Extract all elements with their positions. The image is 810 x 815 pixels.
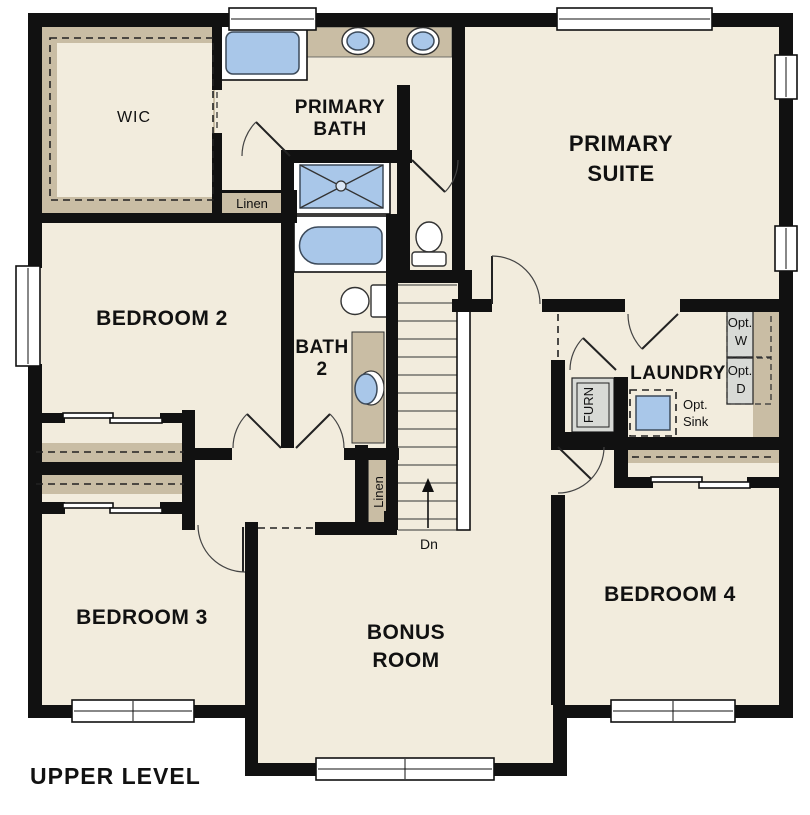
window-bonus-bottom xyxy=(316,758,494,780)
bath2-tub xyxy=(294,216,388,272)
stair-railing xyxy=(457,306,470,530)
label-linen-upper: Linen xyxy=(236,196,268,211)
room-label-primary-suite-2: SUITE xyxy=(587,161,654,186)
bath2-sink xyxy=(355,371,384,405)
laundry-counter-strip xyxy=(753,312,781,437)
room-label-primary-bath-1: PRIMARY xyxy=(295,97,385,118)
label-opt-sink-2: Sink xyxy=(683,414,709,429)
linen-upper-edge xyxy=(218,190,287,193)
window-primary-suite-right-1 xyxy=(775,55,797,99)
room-label-bedroom4: BEDROOM 4 xyxy=(604,583,736,606)
floor-plan-canvas: WIC PRIMARY BATH PRIMARY SUITE Linen BED… xyxy=(0,0,810,810)
window-bedroom4-bottom xyxy=(611,700,735,722)
primary-tub xyxy=(218,25,307,80)
primary-sink-left xyxy=(342,28,374,55)
room-label-laundry: LAUNDRY xyxy=(630,363,726,384)
room-label-bonus-2: ROOM xyxy=(372,649,439,672)
window-bedroom2-left xyxy=(16,266,40,366)
window-bedroom3-bottom xyxy=(72,700,194,722)
room-label-primary-bath-2: BATH xyxy=(313,119,366,140)
label-opt-washer-2: W xyxy=(735,333,748,348)
label-opt-dryer-1: Opt. xyxy=(728,363,753,378)
room-label-bath2-2: 2 xyxy=(316,359,327,380)
label-opt-sink-1: Opt. xyxy=(683,397,708,412)
floor-plan-page: WIC PRIMARY BATH PRIMARY SUITE Linen BED… xyxy=(0,0,810,810)
label-stairs-down: Dn xyxy=(420,536,438,552)
label-opt-washer-1: Opt. xyxy=(728,315,753,330)
primary-sink-right xyxy=(407,28,439,55)
room-label-wic: WIC xyxy=(117,109,151,126)
room-label-bedroom3: BEDROOM 3 xyxy=(76,606,208,629)
room-label-bath2-1: BATH xyxy=(295,337,348,358)
sink-optional xyxy=(630,390,676,436)
window-primary-bath-top xyxy=(229,8,316,30)
page-title: UPPER LEVEL xyxy=(30,763,201,789)
label-linen-stairs: Linen xyxy=(371,476,386,508)
room-label-primary-suite-1: PRIMARY xyxy=(569,131,673,156)
room-label-bonus-1: BONUS xyxy=(367,621,445,644)
shower xyxy=(293,158,390,214)
label-opt-dryer-2: D xyxy=(736,381,745,396)
window-primary-suite-top xyxy=(557,8,712,30)
label-furnace: FURN xyxy=(581,387,596,423)
window-primary-suite-right-2 xyxy=(775,226,797,271)
room-label-bedroom2: BEDROOM 2 xyxy=(96,307,228,330)
